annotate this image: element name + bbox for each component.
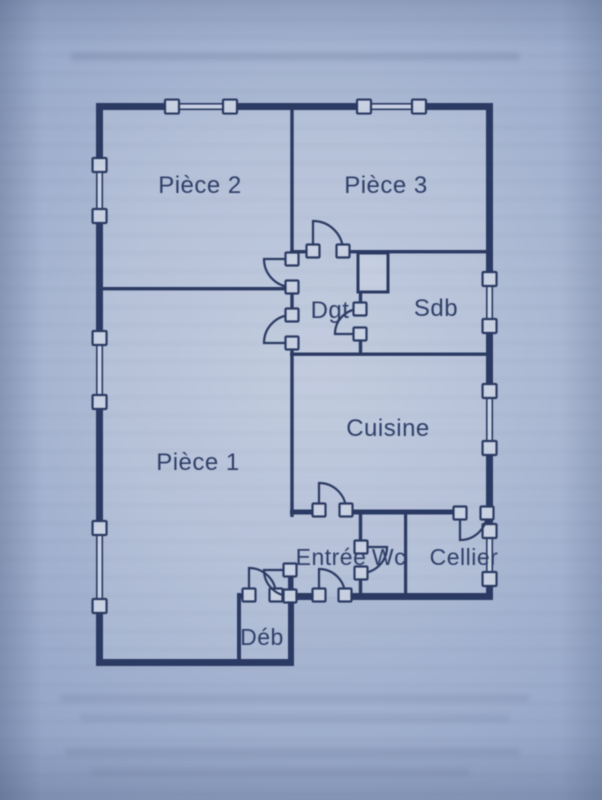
door-post: [93, 599, 107, 613]
door-post: [286, 281, 299, 294]
window: [97, 528, 103, 606]
window: [172, 104, 230, 110]
door-post: [337, 245, 350, 258]
door-post: [93, 395, 107, 409]
door-post: [286, 337, 299, 350]
scanned-page: Pièce 2Pièce 3DgtSdbCuisinePièce 1Entrée…: [0, 0, 602, 800]
door-post: [354, 303, 367, 316]
door-post: [286, 309, 299, 322]
door-post: [223, 100, 237, 114]
door-post: [357, 100, 371, 114]
door-post: [412, 100, 426, 114]
room-label-piece3: Pièce 3: [344, 172, 428, 199]
door-post: [483, 272, 497, 286]
door-post: [483, 572, 497, 586]
wall: [346, 510, 459, 515]
door-post: [165, 100, 179, 114]
door-post: [284, 590, 297, 603]
wall: [486, 326, 493, 391]
wall: [288, 593, 294, 665]
door-post: [243, 589, 256, 602]
room-label-cellier: Cellier: [430, 544, 499, 570]
room-label-piece1: Pièce 1: [156, 449, 240, 476]
wall: [230, 103, 364, 110]
wall: [419, 103, 493, 110]
door-post: [481, 507, 494, 520]
door-post: [307, 245, 320, 258]
door-post: [93, 331, 107, 345]
wall: [96, 402, 103, 528]
closet-outline: [358, 253, 388, 292]
wall: [96, 103, 172, 110]
window: [97, 338, 103, 402]
floor-plan-svg: Pièce 2Pièce 3DgtSdbCuisinePièce 1Entrée…: [0, 0, 602, 800]
window: [364, 104, 419, 110]
room-label-deb: Déb: [240, 624, 284, 650]
wall: [103, 287, 291, 290]
door-post: [339, 589, 352, 602]
door-post: [454, 507, 467, 520]
door-post: [340, 504, 353, 517]
room-label-wc: Wc: [372, 544, 406, 570]
door-post: [284, 564, 297, 577]
wall: [346, 593, 492, 600]
room-label-piece2: Pièce 2: [158, 172, 242, 199]
wall: [96, 103, 103, 165]
wall: [290, 353, 493, 356]
door-post: [313, 504, 326, 517]
room-label-dgt: Dgt: [311, 297, 350, 324]
door-post: [483, 384, 497, 398]
door-post: [93, 521, 107, 535]
wall: [290, 110, 293, 250]
door-post: [483, 441, 497, 455]
wall: [96, 659, 294, 666]
door-post: [286, 253, 299, 266]
door-post: [93, 209, 107, 223]
room-label-cuisine: Cuisine: [346, 415, 430, 442]
door-post: [354, 328, 367, 341]
door-post: [313, 589, 326, 602]
door-post: [93, 158, 107, 172]
room-label-entree: Entrée: [296, 544, 367, 570]
room-label-sdb: Sdb: [414, 295, 458, 322]
wall: [96, 606, 103, 666]
floor-plan: Pièce 2Pièce 3DgtSdbCuisinePièce 1Entrée…: [0, 0, 602, 800]
wall: [290, 355, 293, 517]
wall: [96, 216, 103, 338]
window: [487, 391, 493, 448]
door-post: [483, 319, 497, 333]
